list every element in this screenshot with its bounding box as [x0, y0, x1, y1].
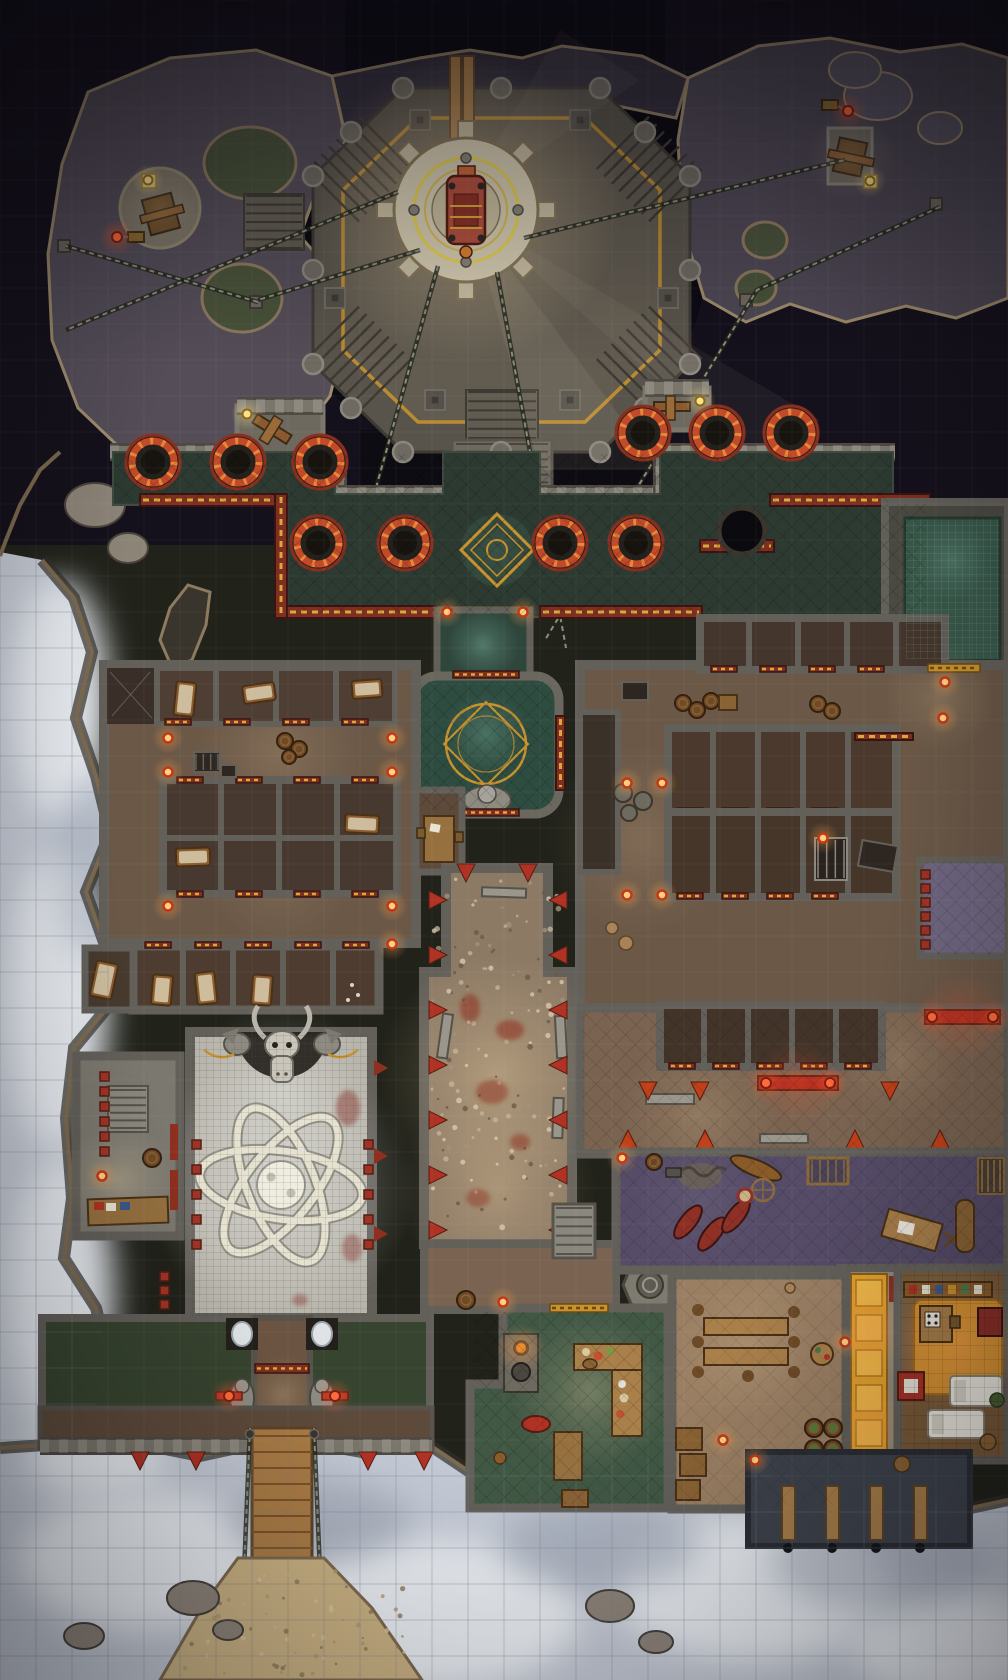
speck — [320, 1646, 323, 1649]
speck — [401, 1635, 404, 1638]
torch — [376, 756, 408, 788]
red-orb — [330, 1391, 340, 1401]
ice-dragon-head — [232, 1322, 252, 1346]
speck — [495, 1104, 500, 1109]
stone-bench — [760, 1134, 808, 1143]
torch — [739, 1444, 771, 1476]
battle-map[interactable] — [0, 0, 1008, 1680]
wall-brazier-hole — [393, 531, 417, 555]
book — [120, 1202, 130, 1210]
red-orb — [748, 1065, 784, 1101]
prayer-rug-center — [904, 1379, 918, 1393]
wall-brazier-hole — [779, 421, 803, 445]
torch — [152, 722, 184, 754]
barrel — [689, 702, 705, 718]
speck — [493, 1117, 498, 1122]
red-chain-column — [160, 1272, 169, 1281]
speck — [345, 1585, 348, 1588]
red-banner-strip — [170, 1124, 178, 1160]
speck — [453, 1033, 457, 1037]
speck — [531, 1147, 534, 1150]
speck — [284, 1665, 286, 1667]
wall-brazier-hole — [141, 450, 165, 474]
hall-red-pillars-west — [192, 1240, 201, 1249]
speck — [459, 980, 464, 985]
torch — [658, 891, 667, 900]
boulder — [167, 1581, 219, 1615]
furnace-knob — [449, 183, 456, 190]
blood-stain — [342, 1234, 362, 1262]
bones — [350, 983, 354, 987]
speck — [542, 891, 546, 895]
platform-pillar — [635, 122, 655, 142]
cot — [351, 679, 382, 699]
speck — [456, 1089, 460, 1093]
boulder — [639, 1631, 673, 1653]
food — [606, 1347, 614, 1355]
speck — [449, 1065, 454, 1070]
barrel-green-lid-lid — [828, 1423, 838, 1433]
speck — [485, 967, 488, 970]
food — [620, 1394, 629, 1403]
cot — [242, 682, 276, 704]
gold-lantern — [684, 385, 716, 417]
torch — [86, 1160, 118, 1192]
speck — [362, 1637, 364, 1639]
speck — [189, 1642, 193, 1646]
speck — [548, 927, 553, 932]
speck — [562, 1087, 564, 1089]
speck — [257, 1582, 259, 1584]
hall-red-pillars-east — [364, 1190, 373, 1199]
hall-red-pillars-east — [364, 1215, 373, 1224]
speck — [560, 998, 565, 1003]
cot — [345, 814, 380, 834]
speck — [498, 1204, 501, 1207]
basket — [894, 1456, 910, 1472]
bridge-post — [310, 1430, 319, 1439]
statue-head — [478, 785, 496, 803]
speck — [524, 1160, 527, 1163]
speck — [442, 1149, 445, 1152]
wall-brazier-hole — [306, 531, 330, 555]
gold-lantern — [243, 410, 252, 419]
cot-mattress — [198, 974, 215, 1001]
torch — [164, 768, 173, 777]
torch — [376, 722, 408, 754]
dock-post — [870, 1486, 883, 1540]
speck — [463, 1106, 468, 1111]
red-orb — [914, 999, 950, 1035]
cart-wheel — [621, 805, 637, 821]
blood-stain — [336, 1090, 360, 1126]
wall-brazier — [288, 513, 348, 573]
book — [94, 1202, 104, 1210]
wall-brazier — [123, 432, 183, 492]
platform-square-pillar-cap — [665, 295, 672, 302]
speck — [488, 966, 493, 971]
food — [594, 1352, 603, 1361]
speck — [474, 930, 479, 935]
speck — [480, 1111, 484, 1115]
summon-door-north — [453, 671, 519, 678]
speck — [488, 944, 492, 948]
speck — [529, 1162, 534, 1167]
speck — [311, 1672, 315, 1676]
speck — [384, 1628, 389, 1633]
speck — [459, 963, 464, 968]
speck — [444, 894, 449, 899]
speck — [446, 1215, 449, 1218]
ice-dragon-head — [312, 1322, 332, 1346]
clay-jug — [785, 1283, 795, 1293]
speck — [547, 980, 551, 984]
torch — [658, 779, 667, 788]
boulder — [918, 112, 962, 144]
office-chair — [417, 828, 425, 838]
wall-brazier — [761, 403, 821, 463]
torch — [98, 1172, 107, 1181]
speck — [265, 1594, 269, 1598]
wall-brazier-hole — [631, 421, 655, 445]
red-orb — [812, 1065, 848, 1101]
speck — [183, 1666, 187, 1670]
blood-stain — [466, 1189, 490, 1207]
chessboard — [925, 1312, 940, 1327]
blood-stain — [476, 1080, 508, 1104]
speck — [473, 1105, 478, 1110]
speck — [442, 1138, 445, 1141]
beacon-brace — [461, 153, 471, 163]
speck — [452, 1125, 457, 1130]
torch — [611, 767, 643, 799]
speck — [525, 920, 527, 922]
wall-brazier — [606, 513, 666, 573]
pot — [815, 1347, 821, 1353]
speck — [258, 1578, 262, 1582]
red-chain-column — [160, 1286, 169, 1295]
crate — [676, 1428, 702, 1450]
platform-pillar — [680, 260, 700, 280]
stool — [788, 1336, 800, 1348]
red-orb — [988, 1012, 998, 1022]
hall-red-pillars-east — [364, 1165, 373, 1174]
speck — [544, 1164, 548, 1168]
platform-square-pillar-cap — [432, 397, 439, 404]
barrel — [282, 750, 296, 764]
knot-dot — [267, 1173, 276, 1182]
stool — [788, 1306, 800, 1318]
bed-pillow — [932, 1414, 944, 1434]
cot — [173, 681, 196, 717]
crate — [562, 1490, 588, 1507]
wall-brazier-hole — [226, 450, 250, 474]
speck — [499, 879, 502, 882]
speck — [398, 1613, 403, 1618]
bones — [346, 998, 350, 1002]
torch — [164, 734, 173, 743]
speck — [446, 1145, 451, 1150]
speck — [536, 1009, 539, 1012]
wall-brazier — [613, 403, 673, 463]
torch — [929, 666, 961, 698]
speck — [517, 1094, 520, 1097]
blood-stain — [510, 1134, 530, 1150]
speck — [509, 1155, 514, 1160]
speck — [494, 1137, 498, 1141]
torch — [927, 702, 959, 734]
speck — [282, 1597, 285, 1600]
battle-map-canvas — [0, 0, 1008, 1680]
food — [618, 1380, 626, 1388]
wall-brazier-hole — [308, 450, 332, 474]
skull-nostril — [276, 1072, 280, 1076]
speck — [471, 1021, 476, 1026]
speck — [446, 1106, 449, 1109]
speck — [468, 951, 472, 955]
speck — [281, 1666, 285, 1670]
speck — [501, 906, 503, 908]
torch — [623, 891, 632, 900]
book — [909, 1285, 917, 1294]
speck — [547, 1127, 552, 1132]
speck — [545, 1033, 550, 1038]
torch — [939, 714, 948, 723]
speck — [443, 1156, 448, 1161]
boulder — [829, 52, 881, 88]
speck — [526, 1104, 531, 1109]
speck — [510, 1011, 513, 1014]
speck — [525, 975, 530, 980]
speck — [516, 915, 519, 918]
speck — [477, 1128, 480, 1131]
torch — [388, 902, 397, 911]
knot-center — [257, 1161, 305, 1209]
winch-light — [115, 162, 205, 252]
torch — [841, 1338, 850, 1347]
speck — [312, 1634, 315, 1637]
speck — [560, 980, 564, 984]
dock-post — [782, 1486, 795, 1540]
chess-square — [927, 1314, 930, 1317]
speck — [223, 1672, 226, 1675]
wall-brazier — [290, 432, 350, 492]
cot-mattress — [177, 684, 194, 713]
torch — [623, 779, 632, 788]
hall-red-pillars-west — [192, 1165, 201, 1174]
speck — [480, 1208, 484, 1212]
speck — [488, 1117, 491, 1120]
stall-row-north — [700, 618, 945, 670]
speck — [528, 1009, 531, 1012]
floor-grate-small — [221, 765, 236, 777]
blood-stain — [496, 1020, 524, 1040]
stool — [692, 1336, 704, 1348]
pond — [204, 127, 296, 199]
speck — [329, 1605, 333, 1609]
speck — [227, 1598, 231, 1602]
speck — [285, 1637, 290, 1642]
cave-stairs — [246, 196, 302, 248]
speck — [321, 1635, 326, 1640]
stool — [692, 1304, 704, 1316]
torch — [618, 1154, 627, 1163]
torch — [807, 822, 839, 854]
speck — [487, 1188, 490, 1191]
winch-light — [806, 113, 896, 203]
red-chain-column — [921, 940, 930, 949]
hall-red-pillars-west — [192, 1215, 201, 1224]
speck — [456, 1098, 462, 1104]
speck — [537, 958, 540, 961]
speck — [472, 1136, 475, 1139]
speck — [265, 1613, 267, 1615]
hall-red-pillars-west — [192, 1190, 201, 1199]
counter — [554, 1432, 582, 1480]
speck — [437, 1098, 439, 1100]
speck — [437, 1131, 442, 1136]
furnace-grate — [454, 194, 478, 226]
torch — [646, 767, 678, 799]
torch — [164, 902, 173, 911]
office-chair — [455, 832, 463, 842]
speck — [480, 935, 484, 939]
cot-mattress — [254, 978, 270, 1003]
red-chain-column — [921, 884, 930, 893]
speck — [527, 1044, 533, 1050]
stool — [742, 1370, 754, 1382]
cot — [194, 971, 217, 1005]
speck — [495, 985, 500, 990]
speck — [294, 1652, 296, 1654]
speck — [558, 1184, 561, 1187]
annex-stairs-base — [108, 1086, 148, 1132]
torch — [152, 756, 184, 788]
speck — [402, 1651, 405, 1654]
speck — [512, 974, 515, 977]
red-orb — [317, 1378, 353, 1414]
speck — [554, 1159, 557, 1162]
stone-bench — [646, 1094, 694, 1104]
pot — [824, 1354, 830, 1360]
torch — [388, 734, 397, 743]
speck — [333, 1640, 336, 1643]
speck — [484, 1054, 488, 1058]
torch — [646, 879, 678, 911]
beacon-brace — [409, 205, 419, 215]
boulder — [213, 1620, 243, 1640]
speck — [364, 1647, 368, 1651]
wall-brazier — [208, 432, 268, 492]
speck — [456, 1201, 460, 1205]
speck — [554, 971, 559, 976]
dock-post — [914, 1486, 927, 1540]
cot-mattress — [154, 977, 170, 1002]
lavender-room — [920, 860, 1008, 956]
speck — [335, 1663, 338, 1666]
boulder — [586, 1590, 634, 1622]
torch — [376, 928, 408, 960]
bed-pillow — [954, 1380, 966, 1402]
wall-brazier-hole — [624, 531, 648, 555]
wall-brazier-hole — [705, 421, 729, 445]
red-chain-column — [921, 912, 930, 921]
speck — [263, 1575, 265, 1577]
well-inner — [637, 1272, 663, 1298]
torch — [751, 1456, 760, 1465]
speck — [491, 1170, 496, 1175]
red-oven — [522, 1416, 550, 1432]
cot-mattress — [179, 851, 207, 864]
speck — [369, 1610, 373, 1614]
annex-desk — [88, 1197, 169, 1226]
archery-target — [738, 1189, 752, 1203]
speck — [516, 1105, 521, 1110]
hall-red-pillars-west — [192, 1140, 201, 1149]
food — [582, 1348, 590, 1356]
speck — [543, 928, 547, 932]
torch — [829, 1326, 861, 1358]
barrel-green-lid-lid — [809, 1423, 819, 1433]
speck — [274, 1664, 279, 1669]
gold-lantern — [696, 397, 705, 406]
torch — [499, 1298, 508, 1307]
speck — [556, 906, 562, 912]
cot — [151, 974, 174, 1006]
speck — [432, 928, 437, 933]
floor-grate — [622, 682, 648, 700]
hall-red-pillars-east — [364, 1240, 373, 1249]
speck — [530, 992, 534, 996]
torch — [941, 678, 950, 687]
speck — [549, 1192, 554, 1197]
platform-pillar — [680, 166, 700, 186]
chair — [950, 1316, 960, 1328]
furnace-knob — [449, 235, 456, 242]
speck — [460, 1160, 465, 1165]
skull-nostril — [284, 1072, 288, 1076]
east-stairs-base — [553, 1204, 595, 1258]
torch — [388, 768, 397, 777]
barrel — [457, 1291, 475, 1309]
wall-brazier — [530, 513, 590, 573]
torch — [487, 1286, 519, 1318]
speck — [333, 1569, 338, 1574]
red-chain-column — [921, 870, 930, 879]
bones — [356, 993, 360, 997]
speck — [396, 1646, 399, 1649]
speck — [300, 1672, 305, 1677]
boulder — [108, 533, 148, 563]
chess-square — [927, 1321, 930, 1324]
speck — [449, 1081, 455, 1087]
furnace-knob — [478, 183, 485, 190]
torch — [376, 890, 408, 922]
speck — [314, 1599, 317, 1602]
speck — [400, 1586, 405, 1591]
speck — [295, 1579, 300, 1584]
cot-mattress — [348, 817, 377, 830]
torch — [152, 890, 184, 922]
dragon-skull-snout — [271, 1056, 293, 1082]
red-chain-column — [160, 1300, 169, 1309]
speck — [475, 942, 479, 946]
barrel — [703, 693, 719, 709]
beacon-brace — [513, 205, 523, 215]
speck — [206, 1640, 210, 1644]
pond — [743, 222, 787, 258]
stone-bench — [555, 1016, 567, 1058]
